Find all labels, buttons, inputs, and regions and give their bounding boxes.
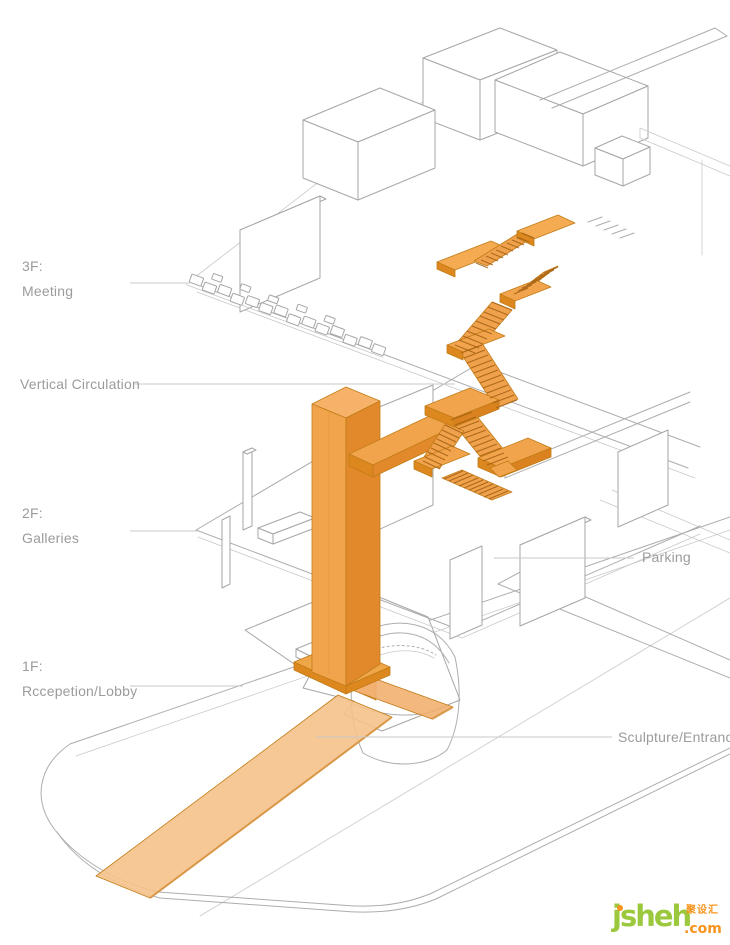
- third-floor-sketch: [186, 28, 730, 357]
- exploded-axonometric-drawing: [0, 0, 730, 945]
- label-vertical-circulation: Vertical Circulation: [20, 376, 140, 392]
- watermark: jsheh 聚设汇 .com: [612, 897, 730, 943]
- watermark-tld: .com: [684, 921, 722, 937]
- label-floor2-name: Galleries: [22, 530, 79, 546]
- label-sculpture-entrance: Sculpture/Entrance: [618, 729, 730, 745]
- label-floor3-name: Meeting: [22, 283, 73, 299]
- watermark-cjk-tag: 聚设汇: [686, 901, 719, 916]
- label-floor1-code: 1F:: [22, 658, 43, 674]
- label-floor1-name: Rccepetion/Lobby: [22, 683, 137, 699]
- label-floor3-code: 3F:: [22, 258, 43, 274]
- watermark-dot-icon: [617, 905, 623, 911]
- path-main: [96, 695, 392, 898]
- label-floor2-code: 2F:: [22, 505, 43, 521]
- label-parking: Parking: [642, 549, 691, 565]
- watermark-brand: jsheh: [612, 899, 690, 933]
- architecture-diagram-page: 3F: Meeting Vertical Circulation 2F: Gal…: [0, 0, 730, 945]
